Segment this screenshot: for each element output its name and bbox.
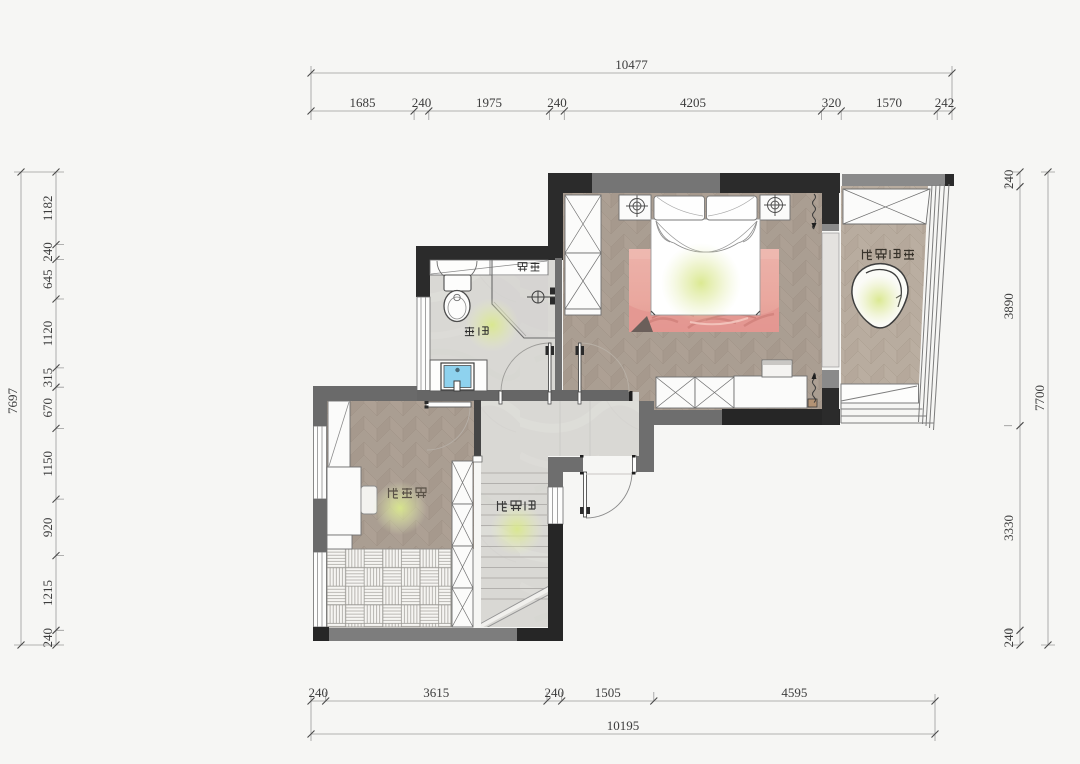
svg-text:240: 240 bbox=[1001, 628, 1016, 648]
svg-text:240: 240 bbox=[1001, 170, 1016, 190]
svg-text:4205: 4205 bbox=[680, 95, 706, 110]
svg-text:240: 240 bbox=[412, 95, 432, 110]
svg-text:1120: 1120 bbox=[40, 321, 55, 347]
svg-text:1685: 1685 bbox=[350, 95, 376, 110]
svg-text:1975: 1975 bbox=[476, 95, 502, 110]
svg-text:10195: 10195 bbox=[607, 718, 640, 733]
svg-text:645: 645 bbox=[40, 269, 55, 289]
svg-text:4595: 4595 bbox=[781, 685, 807, 700]
svg-text:240: 240 bbox=[40, 628, 55, 648]
svg-text:3615: 3615 bbox=[423, 685, 449, 700]
svg-text:1505: 1505 bbox=[595, 685, 621, 700]
svg-text:1150: 1150 bbox=[40, 451, 55, 477]
svg-text:240: 240 bbox=[40, 242, 55, 262]
svg-text:670: 670 bbox=[40, 398, 55, 418]
svg-text:7697: 7697 bbox=[5, 388, 20, 415]
svg-text:3890: 3890 bbox=[1001, 293, 1016, 319]
svg-text:240: 240 bbox=[545, 685, 565, 700]
svg-text:1215: 1215 bbox=[40, 580, 55, 606]
svg-text:1570: 1570 bbox=[876, 95, 902, 110]
svg-text:315: 315 bbox=[40, 368, 55, 388]
svg-text:242: 242 bbox=[935, 95, 955, 110]
svg-text:10477: 10477 bbox=[615, 57, 648, 72]
svg-text:240: 240 bbox=[309, 685, 329, 700]
svg-text:3330: 3330 bbox=[1001, 515, 1016, 541]
svg-text:320: 320 bbox=[822, 95, 842, 110]
svg-text:240: 240 bbox=[547, 95, 567, 110]
svg-text:920: 920 bbox=[40, 518, 55, 538]
svg-text:1182: 1182 bbox=[40, 196, 55, 222]
svg-text:7700: 7700 bbox=[1032, 385, 1047, 411]
